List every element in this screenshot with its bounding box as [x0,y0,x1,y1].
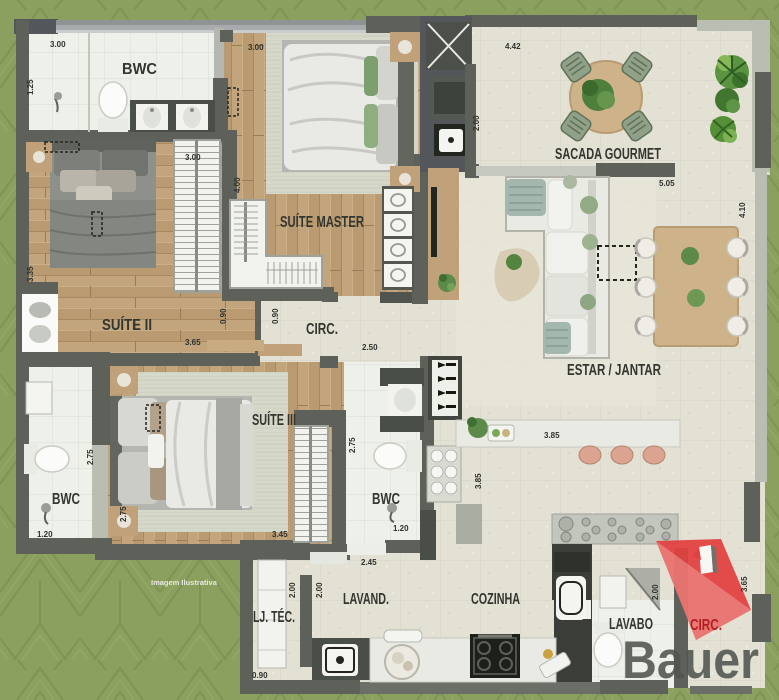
svg-text:2.75: 2.75 [86,449,95,465]
svg-text:LJ. TÉC.: LJ. TÉC. [253,607,295,626]
svg-text:2.00: 2.00 [651,584,660,600]
svg-text:2.00: 2.00 [315,582,324,598]
svg-text:0.90: 0.90 [271,308,280,324]
svg-text:4.42: 4.42 [505,42,521,51]
svg-text:3.85: 3.85 [544,431,560,440]
svg-text:1.20: 1.20 [393,524,409,533]
svg-text:0.90: 0.90 [252,671,268,680]
svg-text:2.75: 2.75 [119,506,128,522]
svg-text:CIRC.: CIRC. [306,321,338,338]
svg-text:2.75: 2.75 [348,437,357,453]
svg-text:BWC: BWC [122,61,157,78]
svg-text:2.00: 2.00 [288,582,297,598]
svg-text:3.00: 3.00 [50,40,66,49]
svg-text:3.65: 3.65 [740,576,749,592]
svg-text:3.00: 3.00 [185,153,201,162]
svg-text:BWC: BWC [372,491,400,508]
svg-text:1.20: 1.20 [37,530,53,539]
svg-text:Imagem Ilustrativa: Imagem Ilustrativa [151,578,218,587]
svg-text:4.00: 4.00 [233,177,242,193]
svg-text:COZINHA: COZINHA [471,591,520,608]
svg-text:0.90: 0.90 [219,308,228,324]
svg-text:1.25: 1.25 [26,79,35,95]
svg-text:ESTAR / JANTAR: ESTAR / JANTAR [567,362,661,379]
svg-text:2.45: 2.45 [361,558,377,567]
svg-text:3.65: 3.65 [185,338,201,347]
svg-text:3.00: 3.00 [248,43,264,52]
svg-text:5.05: 5.05 [659,179,675,188]
svg-text:3.35: 3.35 [26,266,35,282]
svg-text:2.50: 2.50 [362,343,378,352]
svg-text:3.85: 3.85 [474,473,483,489]
svg-text:BWC: BWC [52,491,80,508]
svg-text:SUÍTE MASTER: SUÍTE MASTER [280,212,364,231]
svg-text:LAVAND.: LAVAND. [343,591,389,608]
svg-text:SUÍTE II: SUÍTE II [102,315,152,334]
svg-text:4.10: 4.10 [738,202,747,218]
svg-text:SACADA GOURMET: SACADA GOURMET [555,146,661,163]
svg-text:3.45: 3.45 [272,530,288,539]
svg-text:SUÍTE III: SUÍTE III [252,410,296,429]
svg-text:2.00: 2.00 [472,115,481,131]
svg-text:Bauer: Bauer [622,631,759,690]
